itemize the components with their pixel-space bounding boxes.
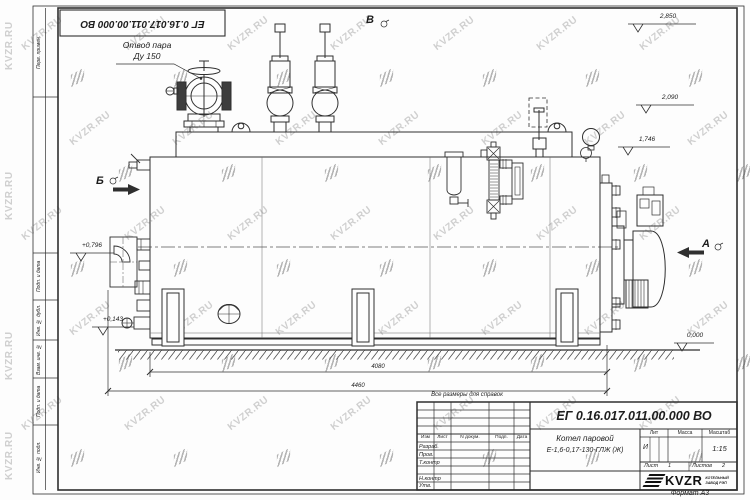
tb-scale-value: 1:15	[703, 444, 736, 453]
margin-field-podp-data-1: Подп. и дата	[33, 253, 45, 300]
tb-row-prov: Пров.	[419, 452, 434, 458]
steam-outlet-label: Отвод пара Ду 150	[108, 40, 186, 62]
rear-nozzles	[612, 185, 620, 330]
steam-outlet-line2: Ду 150	[134, 51, 161, 61]
top-rotated-doc-number: ЕГ 0.16.017.011.00.000 ВО	[60, 10, 225, 36]
kvzr-logo-icon	[643, 474, 666, 487]
tb-row-nkontr: Н.контр	[419, 476, 441, 482]
elevation-0000: 0,000	[676, 332, 714, 339]
view-b-arrow	[113, 184, 140, 195]
elevation-0796: +0,796	[70, 242, 114, 249]
condensate-vessel	[447, 157, 461, 195]
tb-mass-label: Масса	[668, 430, 702, 436]
lifting-lugs	[232, 123, 566, 132]
tb-scale-label: Масштаб	[702, 430, 737, 436]
tb-lit-value: И	[641, 444, 650, 451]
steam-outlet-line1: Отвод пара	[123, 40, 172, 50]
kvzr-logo: KVZR КОТЕЛЬНЫЙ ЗАВОД РЭП	[646, 473, 736, 488]
drum-fittings-right	[529, 98, 600, 162]
tb-sheets-value: 2	[722, 463, 725, 469]
tb-lit-label: Лит	[640, 430, 668, 436]
reference-note: Все размеры для справок	[412, 392, 522, 398]
tb-sheet-value: 1	[668, 463, 671, 469]
view-label-v: В	[366, 14, 374, 26]
rear-and-burner	[600, 175, 665, 332]
rotated-view-icons	[110, 20, 723, 250]
dim-4460: 4460	[334, 383, 382, 389]
title-block-name-line2: Е-1,6-0,17-130-ГЛЖ (Ж)	[530, 447, 640, 454]
safety-valves	[267, 24, 338, 132]
kvzr-logo-text: KVZR	[665, 473, 702, 488]
safety-valve-2	[312, 24, 338, 132]
margin-field-vzam-inv: Взам. инв. №	[33, 340, 45, 378]
margin-field-podp-data-2: Подп. и дата	[33, 378, 45, 425]
tb-col-podp: Подп.	[489, 435, 514, 440]
elevation-2090: 2,090	[648, 94, 692, 101]
base-rail	[152, 339, 600, 345]
tb-col-list: Лист	[434, 435, 451, 440]
title-block-name-line1: Котел паровой	[532, 434, 638, 443]
elevation-1746: 1,746	[626, 136, 668, 143]
margin-field-perv-primen: Перв. примен.	[33, 8, 45, 97]
shell	[150, 157, 600, 338]
safety-valve-1	[267, 24, 293, 132]
tb-row-utv: Утв.	[419, 483, 432, 489]
drawing-sheet: KVZR.RUKVZR.RUKVZR.RUKVZR.RUKVZR.RUKVZR.…	[0, 0, 750, 500]
gauge-glass	[512, 163, 523, 199]
tb-col-izm: Изм	[417, 435, 434, 440]
view-label-a: А	[702, 238, 710, 250]
format-label: Формат А3	[655, 490, 725, 497]
view-label-b: Б	[96, 175, 104, 187]
rear-plate	[600, 183, 612, 332]
tb-row-tkontr: Т.контр	[419, 460, 440, 466]
drum-top-band	[176, 132, 572, 157]
support-legs	[162, 289, 578, 346]
steam-label-leader	[116, 64, 202, 80]
tb-col-ndoc: N докум.	[451, 435, 489, 440]
tb-col-data: Дата	[514, 435, 530, 440]
margin-field-inv-podl: Инв. № подл.	[33, 425, 45, 490]
view-a-arrow	[677, 247, 704, 258]
kvzr-logo-subtext: КОТЕЛЬНЫЙ ЗАВОД РЭП	[705, 476, 728, 485]
kvzr-logo-sub2: ЗАВОД РЭП	[705, 481, 728, 485]
elevation-0143: +0,143	[92, 316, 134, 323]
tb-row-razrab: Разраб.	[419, 444, 439, 450]
tb-sheets-label: Листов	[692, 463, 712, 469]
boiler-body	[138, 132, 618, 346]
steam-outlet-valve	[166, 61, 231, 132]
elevation-2850: 2,850	[644, 13, 692, 20]
title-block-doc-number: ЕГ 0.16.017.011.00.000 ВО	[533, 406, 735, 426]
level-gauge	[445, 142, 523, 219]
manhole	[218, 304, 240, 324]
dim-4080: 4080	[354, 364, 402, 370]
margin-field-inv-dubl: Инв. № дубл.	[33, 300, 45, 340]
ground	[115, 350, 700, 360]
tb-sheet-label: Лист	[644, 463, 658, 469]
